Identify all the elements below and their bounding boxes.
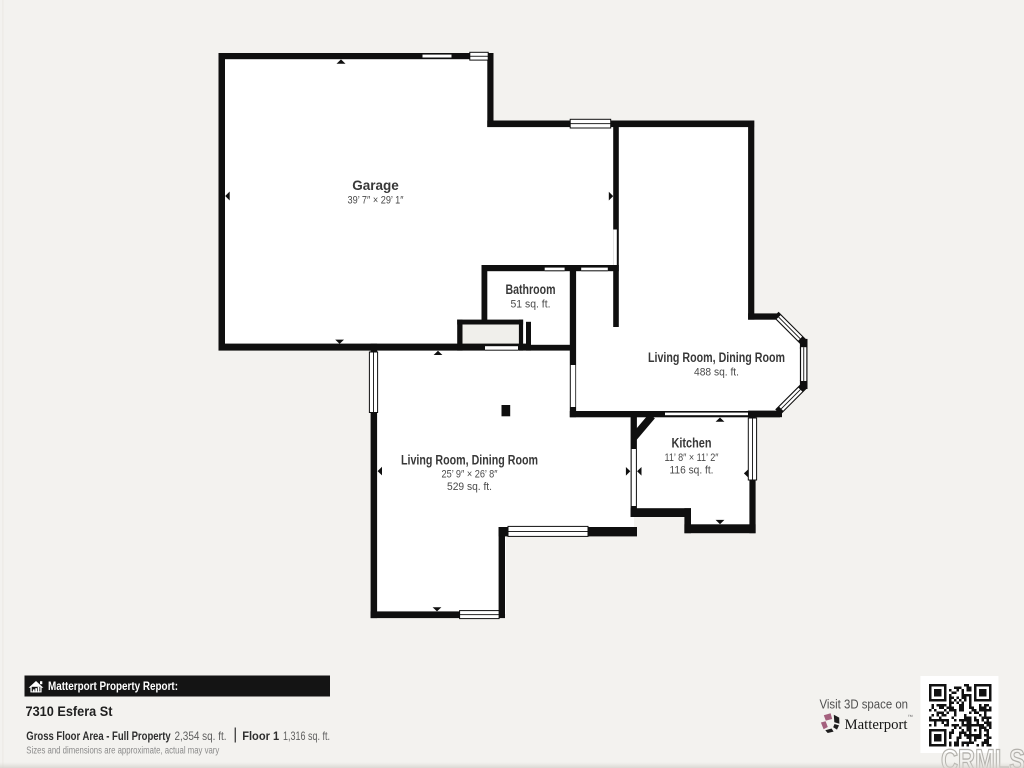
svg-text:39’ 7″ × 29’ 1″: 39’ 7″ × 29’ 1″ xyxy=(348,195,404,207)
svg-text:Gross Floor Area - Full Proper: Gross Floor Area - Full Property xyxy=(26,729,171,743)
svg-text:Kitchen: Kitchen xyxy=(672,436,712,451)
svg-text:Matterport Property Report:: Matterport Property Report: xyxy=(48,681,178,693)
svg-text:51 sq. ft.: 51 sq. ft. xyxy=(511,299,551,311)
svg-text:7310 Esfera St: 7310 Esfera St xyxy=(26,703,113,719)
svg-text:Floor 1: Floor 1 xyxy=(242,729,279,743)
svg-text:11’ 8″ × 11’ 2″: 11’ 8″ × 11’ 2″ xyxy=(665,452,719,464)
svg-text:Matterport: Matterport xyxy=(845,717,909,733)
svg-text:1,316 sq. ft.: 1,316 sq. ft. xyxy=(283,729,330,743)
svg-text:Living Room, Dining Room: Living Room, Dining Room xyxy=(401,453,538,468)
svg-text:529 sq. ft.: 529 sq. ft. xyxy=(447,481,492,493)
svg-text:Garage: Garage xyxy=(352,178,399,193)
svg-text:Visit 3D space on: Visit 3D space on xyxy=(820,698,909,712)
svg-text:Living Room, Dining Room: Living Room, Dining Room xyxy=(648,350,785,365)
svg-text:25’ 9″ × 26’ 8″: 25’ 9″ × 26’ 8″ xyxy=(442,469,498,481)
svg-text:Bathroom: Bathroom xyxy=(506,282,556,297)
svg-text:116 sq. ft.: 116 sq. ft. xyxy=(670,465,714,477)
svg-text:Sizes and dimensions are appro: Sizes and dimensions are approximate, ac… xyxy=(26,746,219,757)
svg-text:2,354 sq. ft.: 2,354 sq. ft. xyxy=(175,729,227,743)
svg-text:™: ™ xyxy=(908,715,914,721)
svg-text:488 sq. ft.: 488 sq. ft. xyxy=(694,367,739,379)
